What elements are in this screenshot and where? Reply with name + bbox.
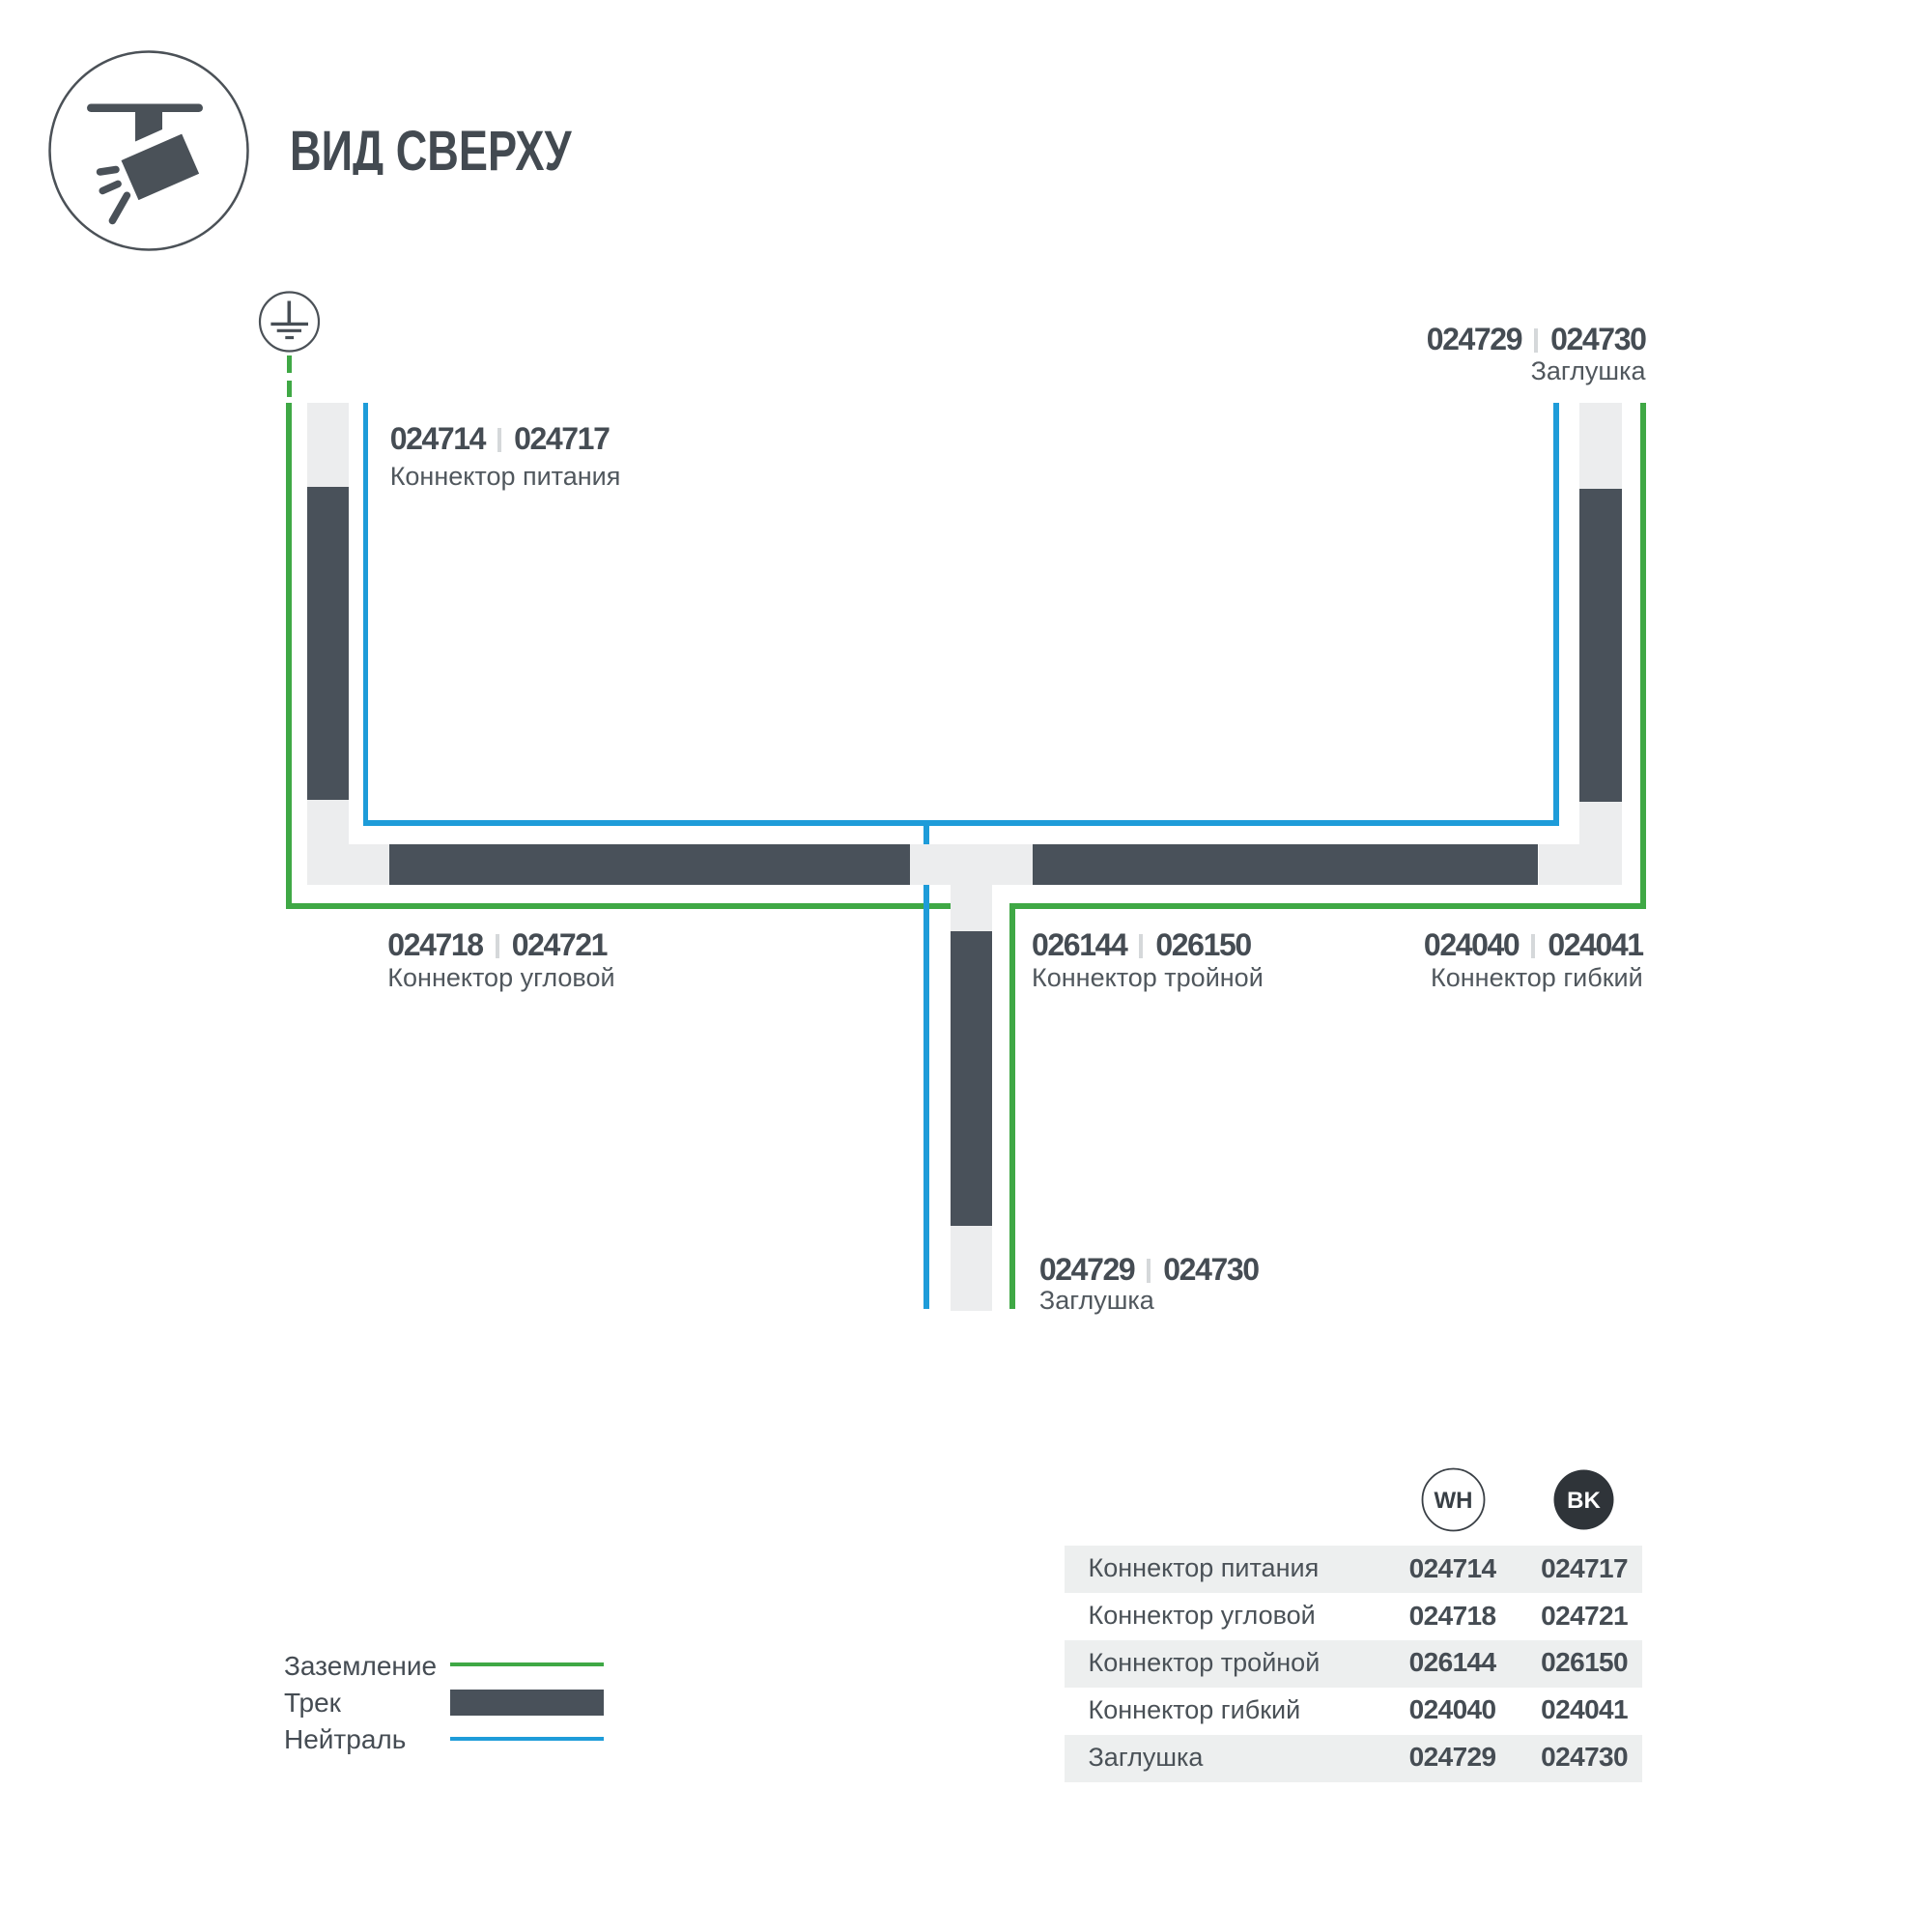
svg-text:BK: BK	[1567, 1488, 1601, 1514]
svg-text:WH: WH	[1435, 1488, 1473, 1514]
